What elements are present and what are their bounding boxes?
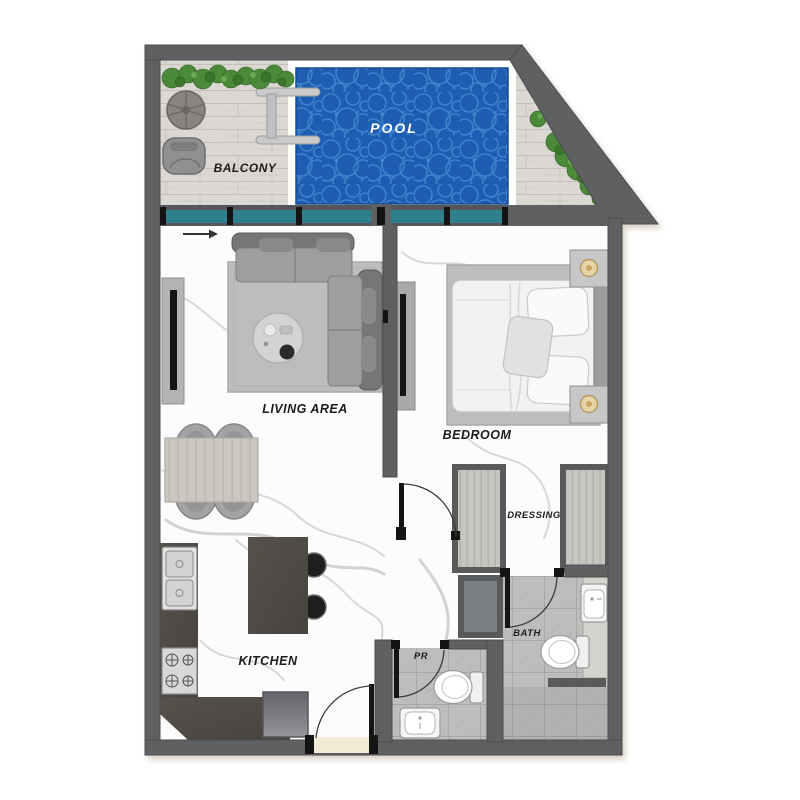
wardrobe-left	[455, 467, 503, 570]
floor-plan: POOL BALCONY LIVING AREA BEDROOM KITCHEN…	[0, 0, 800, 800]
room-label-balcony: BALCONY	[214, 161, 277, 175]
room-label-bath: BATH	[513, 628, 541, 639]
sliding-window-living	[163, 210, 371, 223]
dressing-cabinet	[458, 575, 503, 638]
room-label-living: LIVING AREA	[262, 402, 348, 416]
windows	[160, 204, 608, 226]
sink-bath	[581, 584, 607, 622]
kitchen-sink	[162, 547, 197, 610]
entry-cabinet	[263, 692, 308, 737]
pool	[288, 60, 516, 212]
sink-pr	[400, 708, 440, 738]
room-label-kitchen: KITCHEN	[238, 654, 298, 668]
dining-table	[165, 438, 258, 502]
balcony-chair	[163, 138, 205, 174]
nightstand-bottom	[570, 386, 608, 423]
balcony-table	[167, 91, 205, 129]
wardrobe-right	[563, 467, 608, 570]
toilet-pr	[434, 671, 483, 704]
stove	[162, 648, 197, 694]
coffee-table	[253, 313, 303, 363]
nightstand-top	[570, 250, 608, 287]
room-label-pr: PR	[414, 651, 428, 662]
tv-console-bedroom	[397, 282, 415, 410]
tv-console-living	[162, 278, 184, 404]
bath-partition	[548, 678, 606, 687]
room-label-pool: POOL	[370, 120, 418, 136]
floor-plan-drawing: POOL BALCONY LIVING AREA BEDROOM KITCHEN…	[0, 0, 800, 800]
room-label-bedroom: BEDROOM	[443, 428, 512, 442]
toilet-bath	[541, 636, 589, 669]
room-label-dressing: DRESSING	[507, 510, 561, 521]
